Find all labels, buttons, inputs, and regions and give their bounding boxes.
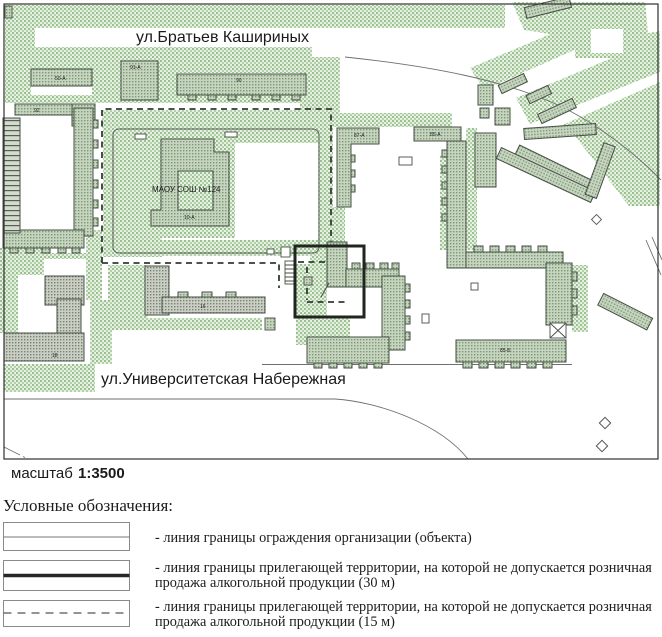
svg-text:85-А: 85-А bbox=[430, 132, 441, 138]
svg-text:50-А: 50-А bbox=[55, 76, 66, 82]
svg-text:продажа алкогольной продукции: продажа алкогольной продукции (30 м) bbox=[155, 575, 395, 591]
svg-text:масштаб: масштаб bbox=[11, 465, 73, 482]
svg-text:- линия границы прилегающей те: - линия границы прилегающей территории, … bbox=[155, 560, 652, 576]
svg-text:18: 18 bbox=[52, 353, 58, 359]
svg-text:- линия границы ограждения орг: - линия границы ограждения организации (… bbox=[155, 530, 472, 546]
svg-text:85-Б: 85-Б bbox=[500, 348, 511, 354]
svg-text:ул.Университетская Набережная: ул.Университетская Набережная bbox=[101, 371, 346, 388]
svg-text:16: 16 bbox=[200, 304, 206, 310]
svg-text:- линия границы прилегающей те: - линия границы прилегающей территории, … bbox=[155, 599, 652, 615]
svg-text:Условные обозначения:: Условные обозначения: bbox=[3, 496, 173, 515]
svg-text:ул.Братьев Кашириных: ул.Братьев Кашириных bbox=[136, 29, 309, 46]
svg-text:продажа алкогольной продукции: продажа алкогольной продукции (15 м) bbox=[155, 614, 395, 630]
svg-text:91-А: 91-А bbox=[130, 65, 141, 71]
svg-text:92: 92 bbox=[34, 108, 40, 114]
svg-text:1:3500: 1:3500 bbox=[78, 465, 125, 482]
svg-text:МАОУ СОШ №124: МАОУ СОШ №124 bbox=[152, 185, 221, 194]
svg-text:10-А: 10-А bbox=[184, 215, 195, 221]
svg-text:90: 90 bbox=[236, 78, 242, 84]
svg-text:87-А: 87-А bbox=[354, 133, 365, 139]
